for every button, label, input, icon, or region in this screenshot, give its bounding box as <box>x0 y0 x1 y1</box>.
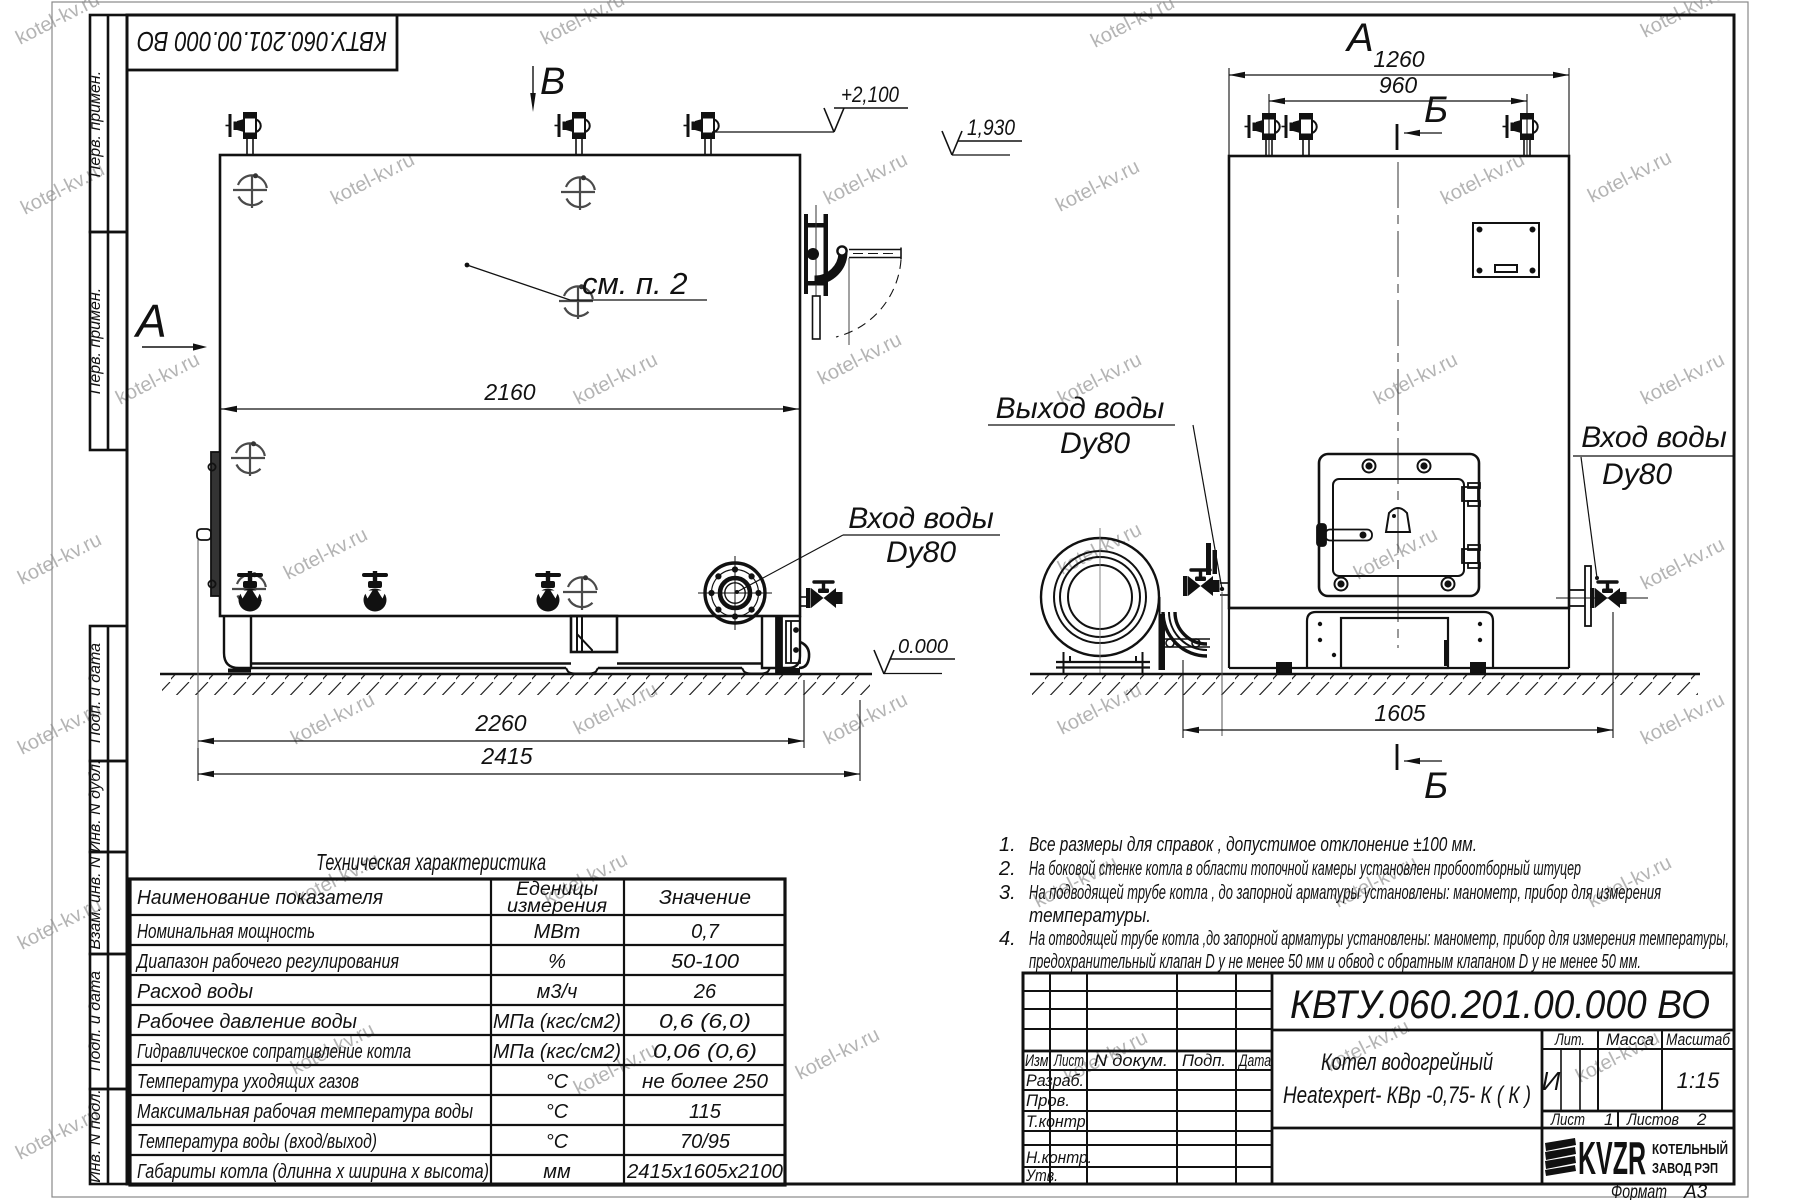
svg-text:Dy80: Dy80 <box>1602 458 1672 491</box>
svg-text:Т.контр.: Т.контр. <box>1026 1112 1090 1131</box>
svg-text:1260: 1260 <box>1373 46 1424 72</box>
svg-text:Масштаб: Масштаб <box>1666 1030 1731 1049</box>
svg-text:Техническая характеристика: Техническая характеристика <box>316 849 546 875</box>
svg-text:+2,100: +2,100 <box>841 82 900 107</box>
svg-text:Подп. и дата: Подп. и дата <box>87 643 104 743</box>
svg-text:3.: 3. <box>999 882 1016 904</box>
svg-text:мм: мм <box>543 1161 571 1183</box>
svg-text:Диапазон рабочего регулировани: Диапазон рабочего регулирования <box>135 951 399 973</box>
svg-text:предохранительный клапан D у: предохранительный клапан D у не менее 50… <box>1029 951 1641 973</box>
svg-text:1:15: 1:15 <box>1677 1068 1721 1093</box>
svg-text:м3/ч: м3/ч <box>537 981 578 1003</box>
svg-text:1.: 1. <box>999 834 1016 856</box>
svg-text:Подп. и дата: Подп. и дата <box>87 971 104 1071</box>
svg-text:И: И <box>1542 1066 1561 1096</box>
svg-text:На боковой стенке котла в обла: На боковой стенке котла в области топочн… <box>1029 858 1581 880</box>
svg-text:960: 960 <box>1379 72 1418 98</box>
svg-text:Значение: Значение <box>659 887 751 909</box>
svg-text:Котел водогрейный: Котел водогрейный <box>1321 1049 1493 1076</box>
svg-text:2260: 2260 <box>474 710 526 736</box>
svg-text:А: А <box>1345 16 1374 60</box>
svg-text:4.: 4. <box>999 928 1016 950</box>
svg-text:А3: А3 <box>1683 1182 1708 1200</box>
svg-text:°С: °С <box>546 1101 569 1123</box>
svg-text:В: В <box>540 61 565 103</box>
svg-text:МВт: МВт <box>534 921 581 943</box>
svg-text:Инв. N дубл.: Инв. N дубл. <box>87 760 104 853</box>
svg-text:Гидравлическое сопративление к: Гидравлическое сопративление котла <box>137 1041 411 1063</box>
svg-text:А: А <box>133 295 167 347</box>
svg-text:МПа (кгс/см2): МПа (кгс/см2) <box>493 1011 621 1033</box>
svg-text:Перв. примен.: Перв. примен. <box>87 71 104 177</box>
svg-text:1,930: 1,930 <box>967 115 1016 140</box>
svg-text:2.: 2. <box>998 858 1016 880</box>
svg-text:2415х1605х2100: 2415х1605х2100 <box>626 1161 783 1183</box>
svg-text:КОТЕЛЬНЫЙ: КОТЕЛЬНЫЙ <box>1652 1140 1728 1158</box>
svg-text:Утв.: Утв. <box>1025 1166 1058 1185</box>
svg-text:Температура уходящих газов: Температура уходящих газов <box>137 1071 359 1093</box>
svg-text:КВТУ.060.201.00.000 ВО: КВТУ.060.201.00.000 ВО <box>1290 983 1710 1027</box>
svg-text:Температура воды (вход/выход): Температура воды (вход/выход) <box>137 1131 377 1153</box>
svg-text:Дата: Дата <box>1238 1051 1271 1070</box>
svg-text:Вход воды: Вход воды <box>848 502 994 535</box>
svg-text:На подводящей трубе котла ,: На подводящей трубе котла , до запорной … <box>1029 882 1661 904</box>
svg-text:%: % <box>548 951 566 973</box>
svg-text:115: 115 <box>689 1101 722 1123</box>
svg-text:Листов: Листов <box>1626 1110 1679 1129</box>
svg-text:Формат: Формат <box>1611 1182 1667 1200</box>
svg-text:0.000: 0.000 <box>898 636 948 658</box>
svg-text:°С: °С <box>546 1131 569 1153</box>
svg-text:ЗАВОД РЭП: ЗАВОД РЭП <box>1652 1160 1718 1177</box>
svg-text:0,06 (0,6): 0,06 (0,6) <box>653 1041 757 1063</box>
svg-text:KVZR: KVZR <box>1578 1132 1646 1184</box>
svg-text:26: 26 <box>693 981 717 1003</box>
svg-text:2415: 2415 <box>480 743 532 769</box>
svg-text:Взам. инв. N: Взам. инв. N <box>87 856 104 950</box>
svg-text:Изм.: Изм. <box>1025 1051 1052 1070</box>
svg-text:Разраб.: Разраб. <box>1026 1071 1084 1090</box>
svg-text:2160: 2160 <box>483 379 535 405</box>
svg-text:N докум.: N докум. <box>1094 1051 1168 1070</box>
svg-text:измерения: измерения <box>507 896 607 917</box>
svg-text:Габариты котла (длинна х ширин: Габариты котла (длинна х ширина х высота… <box>137 1161 489 1183</box>
svg-text:Лист: Лист <box>1550 1110 1585 1129</box>
svg-text:50-100: 50-100 <box>671 951 739 973</box>
svg-text:0,6 (6,0): 0,6 (6,0) <box>659 1011 751 1033</box>
svg-text:Dy80: Dy80 <box>886 536 956 569</box>
svg-text:70/95: 70/95 <box>680 1131 731 1153</box>
svg-text:Все размеры для справок , допу: Все размеры для справок , допустимое отк… <box>1029 834 1477 856</box>
svg-text:Б: Б <box>1424 765 1448 806</box>
svg-text:0,7: 0,7 <box>691 921 720 943</box>
svg-text:МПа (кгс/см2): МПа (кгс/см2) <box>493 1041 621 1063</box>
svg-text:Лист: Лист <box>1053 1051 1084 1070</box>
svg-text:Пров.: Пров. <box>1026 1091 1070 1110</box>
svg-text:Рабочее давление воды: Рабочее давление воды <box>137 1011 357 1033</box>
svg-text:2: 2 <box>1696 1110 1707 1129</box>
svg-text:Масса: Масса <box>1606 1030 1654 1049</box>
svg-text:1605: 1605 <box>1374 700 1425 726</box>
svg-text:Dy80: Dy80 <box>1060 427 1130 460</box>
svg-text:Б: Б <box>1424 89 1448 130</box>
svg-text:не более 250: не более 250 <box>642 1071 768 1093</box>
svg-text:см. п. 2: см. п. 2 <box>582 266 688 301</box>
svg-text:°С: °С <box>546 1071 569 1093</box>
svg-text:Номинальная мощность: Номинальная мощность <box>137 921 315 943</box>
svg-text:КВТУ.060.201.00.000 ВО: КВТУ.060.201.00.000 ВО <box>137 26 387 57</box>
svg-text:На отводящей трубе котла ,до з: На отводящей трубе котла ,до запорной ар… <box>1029 928 1729 950</box>
svg-text:Heatexpert- КВр -0,75- К ( К ): Heatexpert- КВр -0,75- К ( К ) <box>1283 1082 1531 1109</box>
svg-text:Н.контр.: Н.контр. <box>1026 1148 1092 1167</box>
svg-text:Подп.: Подп. <box>1182 1051 1226 1070</box>
svg-text:Вход воды: Вход воды <box>1581 421 1727 454</box>
svg-text:Максимальная рабочая температу: Максимальная рабочая температура воды <box>137 1101 473 1123</box>
svg-text:Инв. N подл.: Инв. N подл. <box>87 1089 104 1183</box>
svg-text:Наименование показателя: Наименование показателя <box>137 887 383 909</box>
svg-text:Лит.: Лит. <box>1554 1030 1585 1049</box>
svg-text:1: 1 <box>1604 1110 1613 1129</box>
svg-text:Перв. примен.: Перв. примен. <box>87 288 104 394</box>
svg-text:Выход воды: Выход воды <box>996 392 1165 425</box>
svg-text:Расход воды: Расход воды <box>137 981 253 1003</box>
svg-text:температуры.: температуры. <box>1029 905 1151 927</box>
